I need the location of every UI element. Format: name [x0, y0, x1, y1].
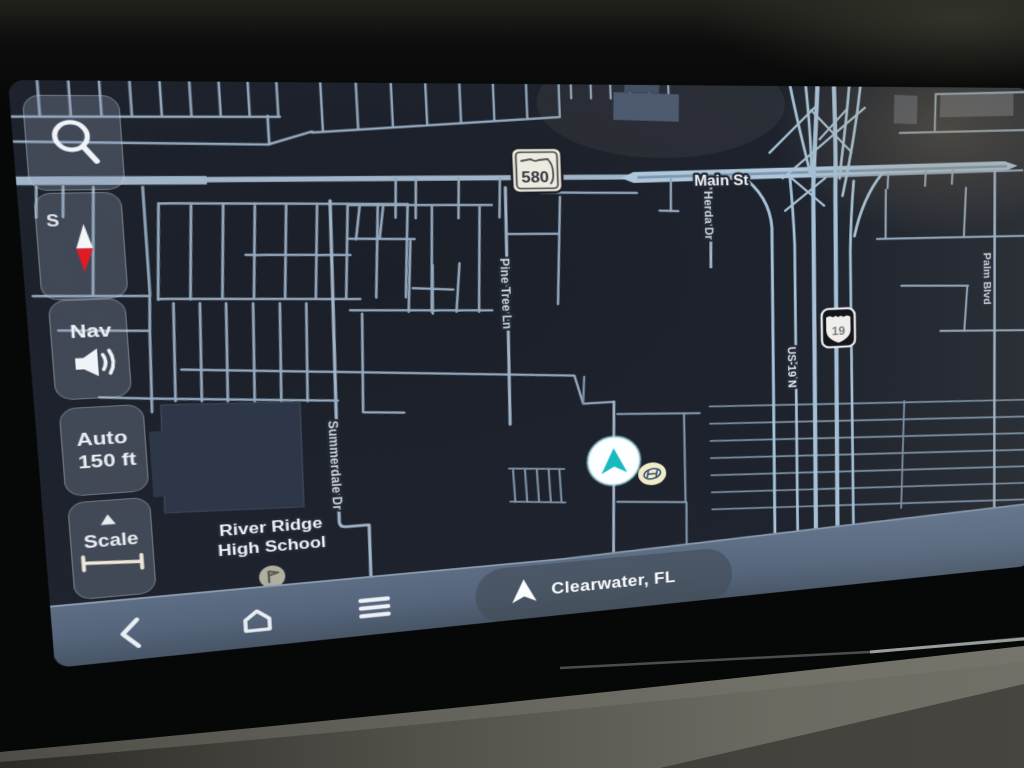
svg-text:Pine Tree Ln: Pine Tree Ln [497, 258, 515, 330]
svg-text:Scale: Scale [83, 529, 139, 553]
svg-text:580: 580 [521, 169, 549, 186]
svg-text:Herda Dr: Herda Dr [701, 191, 716, 240]
svg-text:Nav: Nav [69, 319, 113, 342]
svg-text:Main St: Main St [694, 173, 749, 190]
svg-text:S: S [46, 211, 60, 230]
